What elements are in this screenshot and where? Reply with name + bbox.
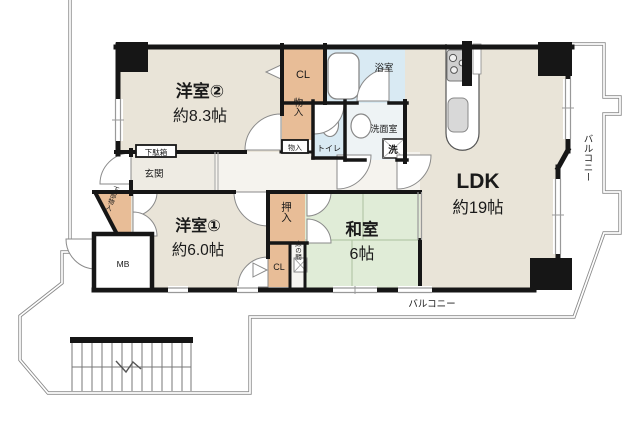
stove-burner [451, 67, 458, 74]
washroom-label: 洗面室 [370, 123, 397, 134]
oshiire-label: 押入 [280, 201, 292, 223]
mb-door [66, 239, 96, 269]
western2-size-label: 約8.3帖 [173, 107, 227, 125]
stove-burner [449, 54, 456, 61]
laundry-label: 洗 [388, 144, 398, 156]
balcony-right-label: バルコニー [582, 134, 594, 182]
western1-name-label: 洋室① [175, 216, 221, 235]
common-stairs [70, 337, 193, 391]
floorplan-canvas: 洋室② 約8.3帖 CL 物入 物入 トイレ 浴室 洗面室 洗 LDK 約19帖… [0, 0, 640, 425]
washroom-sink [351, 114, 371, 138]
shoe-cabinet-label: 下駄箱 [145, 147, 168, 157]
bathtub [328, 53, 359, 99]
balcony-bottom-label: バルコニー [408, 299, 455, 310]
western1-size-label: 約6.0帖 [172, 241, 225, 259]
toilet-label: トイレ [317, 144, 341, 153]
storage-small-label: 物入 [288, 143, 302, 152]
cl-lower-label: CL [273, 262, 285, 272]
meter-box-label: MB [117, 259, 130, 269]
stairs-top-wall [70, 337, 193, 343]
cl-top-label: CL [296, 69, 310, 81]
storage-top-label: 物入 [292, 97, 304, 117]
western2-name-label: 洋室② [176, 81, 224, 101]
washitsu-size-label: 6帖 [350, 245, 375, 263]
entrance-door [100, 153, 131, 184]
entrance-label: 玄関 [144, 168, 163, 180]
ldk-name-label: LDK [456, 170, 499, 193]
washitsu-name-label: 和室 [346, 219, 379, 239]
kitchen-sink [448, 98, 468, 132]
bath-label: 浴室 [374, 62, 393, 74]
western2-window [112, 99, 124, 141]
ldk-size-label: 約19帖 [452, 198, 503, 217]
